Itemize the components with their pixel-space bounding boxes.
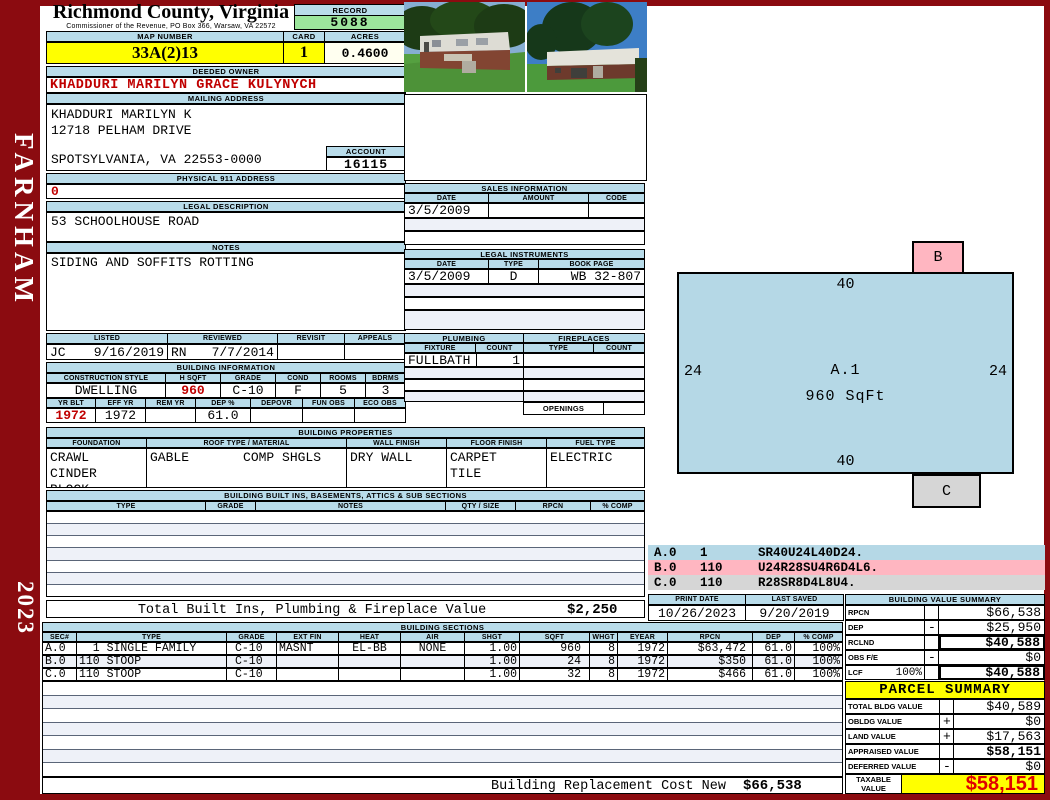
reviewed-by: RN — [171, 345, 187, 360]
sketch-section-c: C — [912, 474, 981, 508]
bs-heat-header: HEAT — [339, 632, 401, 642]
fixture-count-value: 1 — [476, 353, 524, 367]
depovr-value — [251, 408, 303, 423]
bs-heat: EL-BB — [339, 642, 401, 655]
effyr-value: 1972 — [96, 408, 146, 423]
bs-dep: 61.0 — [753, 642, 795, 655]
bs-eyear: 1972 — [618, 642, 668, 655]
instruments-empty-row — [404, 284, 645, 297]
parcel-op: - — [940, 759, 954, 774]
legend-code: B.0 — [648, 561, 700, 575]
parcel-op — [940, 699, 954, 714]
bs-sqft-header: SQFT — [520, 632, 590, 642]
bi-type-header: TYPE — [46, 501, 206, 511]
print-info-values: 10/26/2023 9/20/2019 — [648, 605, 844, 621]
fuel-type-text: ELECTRIC — [547, 449, 615, 466]
district-name-vertical: FARNHAM — [1, 95, 39, 345]
dep-pct-header: DEP % — [196, 398, 251, 408]
legend-trace: U24R28SU4R6D4L6. — [758, 561, 878, 575]
bvs-label: OBS F/E — [845, 650, 925, 665]
visits-header-row: LISTED REVIEWED REVISIT APPEALS — [46, 333, 406, 344]
bi-grade-header: GRADE — [206, 501, 256, 511]
parcel-value: $17,563 — [954, 729, 1045, 744]
instruments-row-1: 3/5/2009 D WB 32-807 — [404, 269, 645, 284]
fireplace-type-header: TYPE — [523, 343, 594, 353]
bs-whgt-header: WHGT — [590, 632, 618, 642]
sales-row-1: 3/5/2009 — [404, 203, 645, 218]
map-number-label: MAP NUMBER — [46, 31, 284, 42]
replacement-cost-row: Building Replacement Cost New $66,538 — [42, 777, 843, 794]
bvs-row-rclnd: RCLND $40,588 — [845, 635, 1045, 650]
openings-value — [604, 402, 645, 415]
sales-empty-row — [404, 231, 645, 245]
construction-style-value: DWELLING — [46, 383, 166, 398]
legend-mult: 110 — [700, 561, 758, 575]
parcel-label: LAND VALUE — [845, 729, 940, 744]
empty-row — [47, 524, 644, 536]
foundation-header: FOUNDATION — [46, 438, 147, 448]
bvs-op — [925, 605, 939, 620]
foundation-line1: CRAWL — [50, 450, 143, 466]
sketch-dim-left: 24 — [684, 363, 702, 380]
taxable-label: TAXABLE VALUE — [845, 774, 902, 794]
sketch-section-b: B — [912, 241, 964, 274]
floor-finish-value: CARPET TILE — [447, 448, 547, 488]
bvs-op: - — [925, 650, 939, 665]
remyr-value — [146, 408, 196, 423]
bs-comp: 100% — [795, 668, 843, 681]
year-vertical: 2023 — [2, 563, 38, 653]
yrblt-header: YR BLT — [46, 398, 96, 408]
bvs-row-obs: OBS F/E - $0 — [845, 650, 1045, 665]
sketch-legend-row-c: C.0 110 R28SR8D4L8U4. — [648, 575, 1045, 590]
instrument-bookpage-header: BOOK PAGE — [539, 259, 645, 269]
last-saved-value: 9/20/2019 — [746, 605, 844, 621]
sales-information-title: SALES INFORMATION — [404, 183, 645, 193]
bs-dep-header: DEP — [753, 632, 795, 642]
bvs-label-text: LCF — [848, 668, 863, 677]
bs-extfin-header: EXT FIN — [277, 632, 339, 642]
instrument-bookpage-value: WB 32-807 — [539, 269, 645, 284]
fuel-type-header: FUEL TYPE — [547, 438, 645, 448]
plumbing-title: PLUMBING — [404, 333, 524, 343]
card-value: 1 — [283, 42, 325, 64]
roof-material: COMP SHGLS — [240, 449, 324, 466]
parcel-row-deferred: DEFERRED VALUE - $0 — [845, 759, 1045, 774]
built-ins-total-row: Total Built Ins, Plumbing & Fireplace Va… — [46, 600, 645, 618]
built-ins-headers: TYPE GRADE NOTES QTY / SIZE RPCN % COMP — [46, 501, 645, 511]
revisit-value — [278, 344, 345, 360]
parcel-op — [940, 744, 954, 759]
parcel-row-taxable: TAXABLE VALUE $58,151 — [845, 774, 1045, 794]
fireplace-count-header: COUNT — [594, 343, 645, 353]
plumbing-headers: FIXTURE COUNT — [404, 343, 524, 353]
roof-type: GABLE — [147, 449, 192, 466]
bs-sec: C.0 — [42, 668, 77, 681]
notes-label: NOTES — [46, 242, 406, 253]
building-value-summary-title: BUILDING VALUE SUMMARY — [845, 594, 1045, 605]
built-ins-total-value: $2,250 — [567, 602, 617, 618]
bvs-value: $40,588 — [939, 665, 1045, 680]
bs-dep: 61.0 — [753, 668, 795, 681]
rooms-value: 5 — [321, 383, 366, 398]
bvs-row-lcf: LCF 100% $40,588 — [845, 665, 1045, 680]
ecoobs-value — [355, 408, 406, 423]
appeals-value — [345, 344, 406, 360]
bs-heat — [339, 668, 401, 681]
wall-finish-header: WALL FINISH — [347, 438, 447, 448]
built-ins-empty-rows — [46, 511, 645, 597]
sketch-dim-top: 40 — [836, 276, 854, 293]
hsqft-value: 960 — [166, 383, 221, 398]
mailing-address-label: MAILING ADDRESS — [46, 93, 406, 104]
legend-mult: 110 — [700, 576, 758, 590]
construction-style-header: CONSTRUCTION STYLE — [46, 373, 166, 383]
legal-description-value: 53 SCHOOLHOUSE ROAD — [51, 214, 199, 229]
parcel-summary-title: PARCEL SUMMARY — [845, 681, 1045, 699]
bs-dep: 61.0 — [753, 655, 795, 668]
bs-air: NONE — [401, 642, 465, 655]
building-info-header1: CONSTRUCTION STYLE H SQFT GRADE COND ROO… — [46, 373, 406, 383]
building-info-values2: 1972 1972 61.0 — [46, 408, 406, 423]
fixture-value: FULLBATH — [404, 353, 476, 367]
revisit-header: REVISIT — [278, 333, 345, 344]
last-saved-header: LAST SAVED — [746, 594, 844, 605]
bs-eyear-header: EYEAR — [618, 632, 668, 642]
foundation-line2: CINDER BLOCK — [50, 466, 143, 488]
sketch-section-label: A.1 — [830, 362, 860, 379]
hsqft-header: H SQFT — [166, 373, 221, 383]
bs-sec-header: SEC# — [42, 632, 77, 642]
bs-type: 110 STOOP — [77, 668, 227, 681]
empty-row — [47, 548, 644, 560]
bi-notes-header: NOTES — [256, 501, 446, 511]
sketch-section-sqft: 960 SqFt — [805, 388, 885, 405]
mailing-line3: SPOTSYLVANIA, VA 22553-0000 — [51, 152, 262, 167]
listed-header: LISTED — [46, 333, 168, 344]
bs-rpcn: $350 — [668, 655, 753, 668]
commissioner-line: Commissioner of the Revenue, PO Box 366,… — [48, 23, 294, 30]
empty-row — [43, 763, 842, 776]
empty-row — [43, 682, 842, 696]
bs-air — [401, 668, 465, 681]
bs-comp: 100% — [795, 642, 843, 655]
fireplaces-empty-row — [523, 379, 645, 391]
bs-sqft: 960 — [520, 642, 590, 655]
bvs-label-pct: 100% — [896, 667, 922, 679]
acres-value: 0.4600 — [324, 42, 406, 64]
parcel-label: TOTAL BLDG VALUE — [845, 699, 940, 714]
account-value: 16115 — [326, 157, 406, 171]
physical-address-label: PHYSICAL 911 ADDRESS — [46, 173, 406, 184]
parcel-label: OBLDG VALUE — [845, 714, 940, 729]
bvs-row-dep: DEP - $25,950 — [845, 620, 1045, 635]
bs-air — [401, 655, 465, 668]
county-title: Richmond County, Virginia — [48, 2, 294, 23]
dep-pct-value: 61.0 — [196, 408, 251, 423]
building-section-row-a: A.0 1 SINGLE FAMILY C-10 MASNT EL-BB NON… — [42, 642, 843, 655]
bs-eyear: 1972 — [618, 668, 668, 681]
replacement-cost-value: $66,538 — [743, 778, 802, 794]
grade-value: C-10 — [221, 383, 276, 398]
building-section-row-c: C.0 110 STOOP C-10 1.00 32 8 1972 $466 6… — [42, 668, 843, 681]
legal-instruments-title: LEGAL INSTRUMENTS — [404, 249, 645, 259]
bs-sec: A.0 — [42, 642, 77, 655]
mailing-line1: KHADDURI MARILYN K — [51, 107, 191, 122]
building-sections-empty-rows — [42, 681, 843, 777]
bs-whgt: 8 — [590, 642, 618, 655]
record-value: 5088 — [294, 15, 406, 30]
plumbing-empty-row — [404, 391, 524, 402]
bvs-op: - — [925, 620, 939, 635]
funobs-value — [303, 408, 355, 423]
parcel-value: $40,589 — [954, 699, 1045, 714]
physical-address-value: 0 — [46, 184, 406, 199]
cond-header: COND — [276, 373, 321, 383]
sales-headers: DATE AMOUNT CODE — [404, 193, 645, 203]
yrblt-value: 1972 — [46, 408, 96, 423]
parcel-row-obldg: OBLDG VALUE + $0 — [845, 714, 1045, 729]
building-information-title: BUILDING INFORMATION — [46, 362, 406, 373]
sketch-legend-row-a: A.0 1 SR40U24L40D24. — [648, 545, 1045, 560]
instrument-date-header: DATE — [404, 259, 489, 269]
bvs-value: $66,538 — [939, 605, 1045, 620]
instruments-headers: DATE TYPE BOOK PAGE — [404, 259, 645, 269]
listed-value: JC 9/16/2019 — [46, 344, 168, 360]
sales-date-header: DATE — [404, 193, 489, 203]
sales-empty-row — [404, 218, 645, 231]
parcel-row-appraised: APPRAISED VALUE $58,151 — [845, 744, 1045, 759]
building-info-header2: YR BLT EFF YR REM YR DEP % DEPOVR FUN OB… — [46, 398, 406, 408]
bs-grade-header: GRADE — [227, 632, 277, 642]
sketch-legend-row-b: B.0 110 U24R28SU4R6D4L6. — [648, 560, 1045, 575]
legend-code: C.0 — [648, 576, 700, 590]
deeded-owner-label: DEEDED OWNER — [46, 66, 406, 77]
fixture-header: FIXTURE — [404, 343, 476, 353]
funobs-header: FUN OBS — [303, 398, 355, 408]
print-date-value: 10/26/2023 — [648, 605, 746, 621]
parcel-value: $58,151 — [954, 744, 1045, 759]
roof-value: GABLE COMP SHGLS — [147, 448, 347, 488]
bs-grade: C-10 — [227, 642, 277, 655]
bs-extfin: MASNT — [277, 642, 339, 655]
bs-rpcn: $63,472 — [668, 642, 753, 655]
legend-trace: SR40U24L40D24. — [758, 546, 863, 560]
card-label: CARD — [283, 31, 325, 42]
bs-heat — [339, 655, 401, 668]
bs-whgt: 8 — [590, 655, 618, 668]
bs-sqft: 32 — [520, 668, 590, 681]
parcel-row-total-bldg: TOTAL BLDG VALUE $40,589 — [845, 699, 1045, 714]
cond-value: F — [276, 383, 321, 398]
bvs-label: RPCN — [845, 605, 925, 620]
bvs-value: $0 — [939, 650, 1045, 665]
acres-label: ACRES — [324, 31, 406, 42]
legend-trace: R28SR8D4L8U4. — [758, 576, 856, 590]
bs-type: 110 STOOP — [77, 655, 227, 668]
sketch-dim-right: 24 — [989, 363, 1007, 380]
remyr-header: REM YR — [146, 398, 196, 408]
instruments-empty-row — [404, 310, 645, 330]
bi-comp-header: % COMP — [591, 501, 645, 511]
bdrms-value: 3 — [366, 383, 406, 398]
bs-shgt: 1.00 — [465, 655, 520, 668]
deeded-owner-name: KHADDURI MARILYN GRACE KULYNYCH — [46, 77, 406, 93]
depovr-header: DEPOVR — [251, 398, 303, 408]
legal-description-label: LEGAL DESCRIPTION — [46, 201, 406, 212]
plumbing-empty-row — [404, 367, 524, 379]
empty-row — [47, 561, 644, 573]
instrument-type-value: D — [489, 269, 539, 284]
reviewed-header: REVIEWED — [168, 333, 278, 344]
wall-finish-text: DRY WALL — [347, 449, 415, 466]
grade-header: GRADE — [221, 373, 276, 383]
empty-row — [43, 696, 842, 710]
property-photo-rear — [404, 2, 525, 92]
effyr-header: EFF YR — [96, 398, 146, 408]
building-info-values1: DWELLING 960 C-10 F 5 3 — [46, 383, 406, 398]
fireplaces-empty-row — [523, 353, 645, 367]
building-properties-title: BUILDING PROPERTIES — [46, 427, 645, 438]
bs-comp-header: % COMP — [795, 632, 843, 642]
notes-value: SIDING AND SOFFITS ROTTING — [51, 255, 254, 270]
building-sections-title: BUILDING SECTIONS — [42, 622, 843, 632]
fixture-count-header: COUNT — [476, 343, 524, 353]
plumbing-empty-row — [404, 379, 524, 391]
empty-row — [43, 750, 842, 764]
fireplaces-headers: TYPE COUNT — [523, 343, 645, 353]
bvs-value: $25,950 — [939, 620, 1045, 635]
taxable-value: $58,151 — [902, 774, 1045, 794]
sales-amount-value — [489, 203, 589, 218]
fireplaces-title: FIREPLACES — [523, 333, 645, 343]
floor-line2: TILE — [450, 466, 497, 482]
parcel-op: + — [940, 729, 954, 744]
floor-finish-header: FLOOR FINISH — [447, 438, 547, 448]
account-label: ACCOUNT — [326, 146, 406, 157]
parcel-op: + — [940, 714, 954, 729]
bs-rpcn-header: RPCN — [668, 632, 753, 642]
empty-row — [43, 736, 842, 750]
bs-grade: C-10 — [227, 655, 277, 668]
visits-value-row: JC 9/16/2019 RN 7/7/2014 — [46, 344, 406, 360]
print-date-header: PRINT DATE — [648, 594, 746, 605]
parcel-row-land: LAND VALUE + $17,563 — [845, 729, 1045, 744]
legend-mult: 1 — [700, 546, 758, 560]
bs-sec: B.0 — [42, 655, 77, 668]
reviewed-value: RN 7/7/2014 — [168, 344, 278, 360]
parcel-value: $0 — [954, 714, 1045, 729]
wall-finish-value: DRY WALL — [347, 448, 447, 488]
sketch-main-section: 40 40 24 24 A.1 960 SqFt — [677, 272, 1014, 474]
mailing-line2: 12718 PELHAM DRIVE — [51, 123, 191, 138]
bdrms-header: BDRMS — [366, 373, 406, 383]
plumbing-row-1: FULLBATH 1 — [404, 353, 524, 367]
built-ins-total-label: Total Built Ins, Plumbing & Fireplace Va… — [117, 603, 507, 618]
county-title-block: Richmond County, Virginia Commissioner o… — [48, 2, 294, 32]
bs-comp: 100% — [795, 655, 843, 668]
sketch-dim-bottom: 40 — [836, 453, 854, 470]
bvs-value: $40,588 — [939, 635, 1045, 650]
ecoobs-header: ECO OBS — [355, 398, 406, 408]
print-info-headers: PRINT DATE LAST SAVED — [648, 594, 844, 605]
sales-code-value — [589, 203, 645, 218]
bs-whgt: 8 — [590, 668, 618, 681]
property-photo-side — [527, 2, 647, 92]
bs-rpcn: $466 — [668, 668, 753, 681]
rooms-header: ROOMS — [321, 373, 366, 383]
bs-grade: C-10 — [227, 668, 277, 681]
bs-shgt: 1.00 — [465, 668, 520, 681]
openings-row: OPENINGS — [523, 402, 645, 415]
sales-amount-header: AMOUNT — [489, 193, 589, 203]
empty-row — [43, 709, 842, 723]
building-properties-headers: FOUNDATION ROOF TYPE / MATERIAL WALL FIN… — [46, 438, 645, 448]
empty-row — [47, 585, 644, 596]
bs-sqft: 24 — [520, 655, 590, 668]
building-properties-values: CRAWL CINDER BLOCK GABLE COMP SHGLS DRY … — [46, 448, 645, 488]
fireplaces-empty-row — [523, 367, 645, 379]
instrument-type-header: TYPE — [489, 259, 539, 269]
parcel-label: DEFERRED VALUE — [845, 759, 940, 774]
fireplaces-empty-row — [523, 391, 645, 402]
listed-date: 9/16/2019 — [94, 345, 164, 360]
bi-qty-header: QTY / SIZE — [446, 501, 516, 511]
building-section-row-b: B.0 110 STOOP C-10 1.00 24 8 1972 $350 6… — [42, 655, 843, 668]
bi-rpcn-header: RPCN — [516, 501, 591, 511]
bvs-row-rpcn: RPCN $66,538 — [845, 605, 1045, 620]
map-number-value: 33A(2)13 — [46, 42, 284, 64]
empty-row — [47, 512, 644, 524]
parcel-value: $0 — [954, 759, 1045, 774]
empty-row — [47, 536, 644, 548]
bs-extfin — [277, 668, 339, 681]
openings-label: OPENINGS — [523, 402, 604, 415]
empty-row — [47, 573, 644, 585]
bs-eyear: 1972 — [618, 655, 668, 668]
reviewed-date: 7/7/2014 — [212, 345, 274, 360]
empty-row — [43, 723, 842, 737]
listed-by: JC — [50, 345, 66, 360]
bs-type: 1 SINGLE FAMILY — [77, 642, 227, 655]
bs-shgt: 1.00 — [465, 642, 520, 655]
replacement-cost-label: Building Replacement Cost New — [491, 779, 726, 794]
bs-type-header: TYPE — [77, 632, 227, 642]
building-sections-headers: SEC# TYPE GRADE EXT FIN HEAT AIR SHGT SQ… — [42, 632, 843, 642]
foundation-value: CRAWL CINDER BLOCK — [46, 448, 147, 488]
bs-shgt-header: SHGT — [465, 632, 520, 642]
bvs-op — [925, 665, 939, 680]
sales-code-header: CODE — [589, 193, 645, 203]
bvs-label: DEP — [845, 620, 925, 635]
instrument-date-value: 3/5/2009 — [404, 269, 489, 284]
bvs-label: LCF 100% — [845, 665, 925, 680]
bs-extfin — [277, 655, 339, 668]
bs-air-header: AIR — [401, 632, 465, 642]
instruments-empty-row — [404, 297, 645, 310]
appeals-header: APPEALS — [345, 333, 406, 344]
built-ins-title: BUILDING BUILT INS, BASEMENTS, ATTICS & … — [46, 490, 645, 501]
legend-code: A.0 — [648, 546, 700, 560]
parcel-label: APPRAISED VALUE — [845, 744, 940, 759]
roof-header: ROOF TYPE / MATERIAL — [147, 438, 347, 448]
sales-date-value: 3/5/2009 — [404, 203, 489, 218]
bvs-op — [925, 635, 939, 650]
floor-line1: CARPET — [450, 450, 497, 466]
fuel-type-value: ELECTRIC — [547, 448, 645, 488]
bvs-label: RCLND — [845, 635, 925, 650]
photo-note-box — [404, 94, 647, 181]
